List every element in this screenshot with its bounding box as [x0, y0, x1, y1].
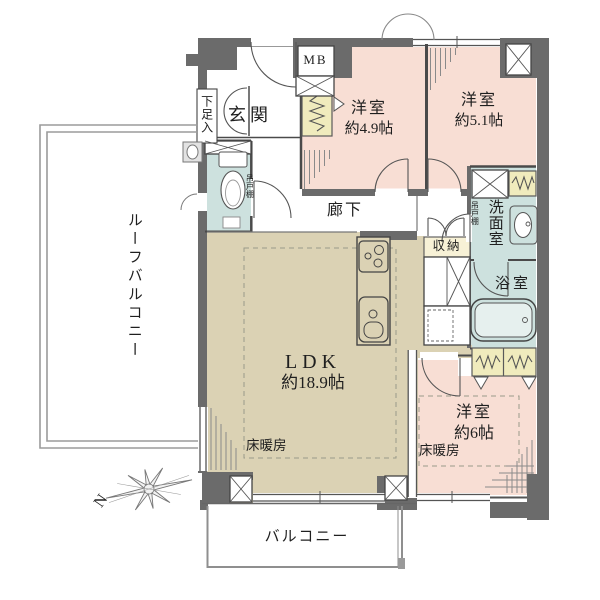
washroom-label: 洗面室 [486, 199, 502, 247]
ldk-floor-heating-label: 床暖房 [246, 439, 287, 453]
bedroom3-name-label: 洋室 [428, 405, 520, 422]
shoe-cabinet-label: 下足入 [200, 95, 213, 134]
bedroom2-name-label: 洋室 [433, 93, 525, 110]
porch-door-swing [408, 14, 434, 40]
storage-door-swing [446, 218, 464, 236]
ldk-size-label: 約18.9帖 [253, 374, 373, 392]
bedroom2-size-label: 約5.1帖 [433, 114, 525, 130]
storage-label: 収納 [424, 240, 470, 253]
bathroom-label: 浴室 [487, 277, 539, 293]
toilet-shelf-label: 吊戸棚 [245, 174, 253, 198]
roof-balcony-label: ルーフバルコニー [125, 212, 141, 360]
kitchen-counter [357, 237, 390, 345]
entrance-label: 玄関 [228, 106, 272, 125]
bedroom3-size-label: 約6帖 [428, 426, 520, 443]
floor-plan-drawing [0, 0, 600, 600]
floor-plan: ルーフバルコニー 玄関 下足入 吊戸棚 MB 洋室 約4.9帖 洋室 約5.1帖… [0, 0, 600, 600]
bedroom1-size-label: 約4.9帖 [323, 122, 415, 138]
bedroom1-name-label: 洋室 [323, 101, 415, 118]
bedroom3-floor-heating-label: 床暖房 [419, 444, 460, 458]
ldk-name-label: LDK [253, 352, 373, 373]
toilet-tank [219, 152, 247, 167]
porch-door-swing [382, 14, 408, 40]
balcony-label: バルコニー [257, 530, 357, 546]
toilet-door-swing [254, 181, 291, 218]
hallway-label: 廊下 [327, 203, 363, 220]
roof-balcony-outline [40, 125, 198, 448]
toilet-bowl-icon [221, 171, 245, 209]
fridge-space-box [424, 306, 470, 345]
toilet-step [223, 217, 240, 228]
washroom-closet [509, 171, 536, 196]
washroom-shelf-label: 吊戸棚 [470, 201, 478, 225]
meter-box-label: MB [297, 53, 334, 67]
compass-icon [102, 460, 196, 517]
entrance-door-swing [251, 42, 296, 87]
